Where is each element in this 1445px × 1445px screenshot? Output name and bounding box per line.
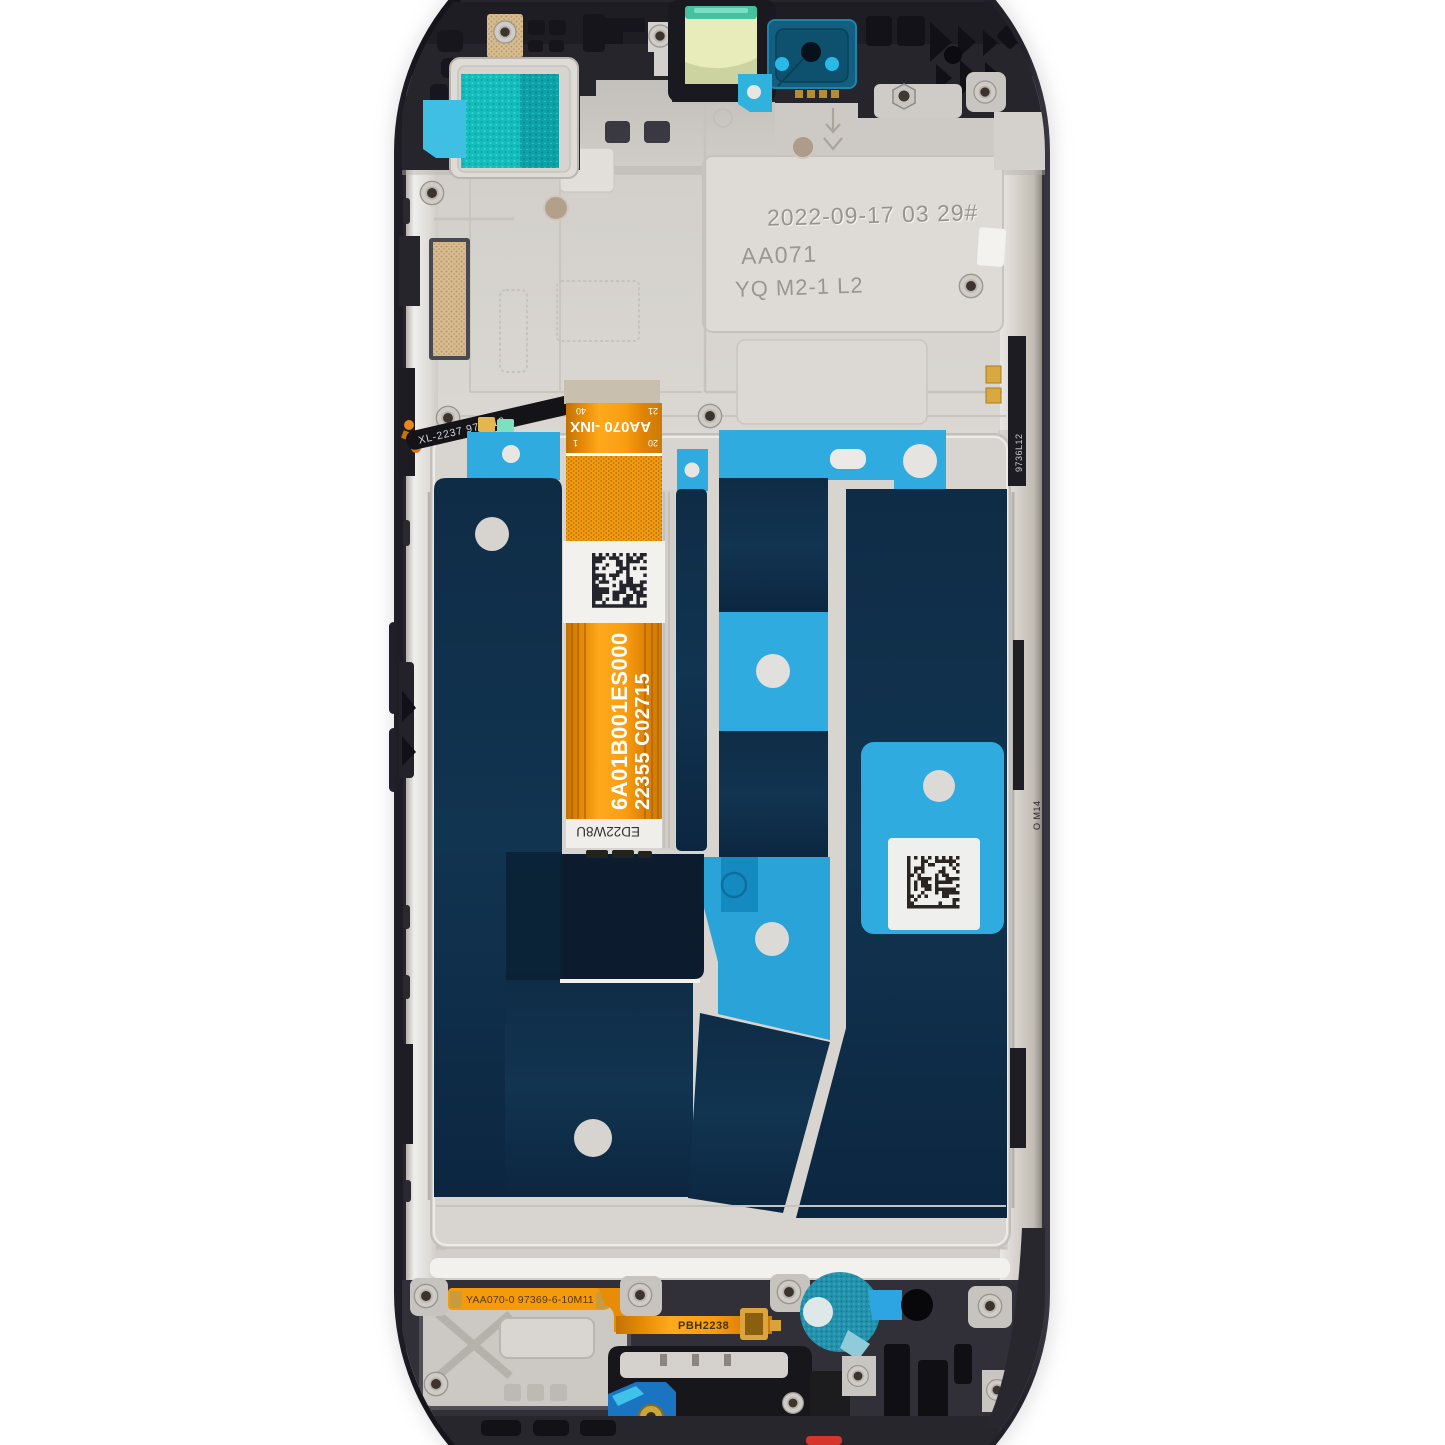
svg-text:O M14: O M14 xyxy=(1032,800,1042,830)
svg-text:6A01B001ES000: 6A01B001ES000 xyxy=(607,632,632,810)
svg-text:22355 C02715: 22355 C02715 xyxy=(632,673,654,810)
svg-text:20: 20 xyxy=(648,438,658,448)
svg-text:1: 1 xyxy=(573,438,578,448)
svg-text:9736L12: 9736L12 xyxy=(1014,433,1024,472)
svg-text:YQ M2-1 L2: YQ M2-1 L2 xyxy=(735,272,864,301)
svg-text:YAA070-0 97369-6-10M11: YAA070-0 97369-6-10M11 xyxy=(466,1294,594,1306)
svg-text:AA070 -INX: AA070 -INX xyxy=(570,418,651,435)
svg-text:40: 40 xyxy=(576,406,586,416)
svg-text:21: 21 xyxy=(648,406,658,416)
svg-text:ED22W8U: ED22W8U xyxy=(576,824,640,839)
svg-text:PBH2238: PBH2238 xyxy=(678,1320,729,1332)
svg-text:2022-09-17 03 29#: 2022-09-17 03 29# xyxy=(767,199,979,231)
svg-text:AA071: AA071 xyxy=(741,241,818,270)
